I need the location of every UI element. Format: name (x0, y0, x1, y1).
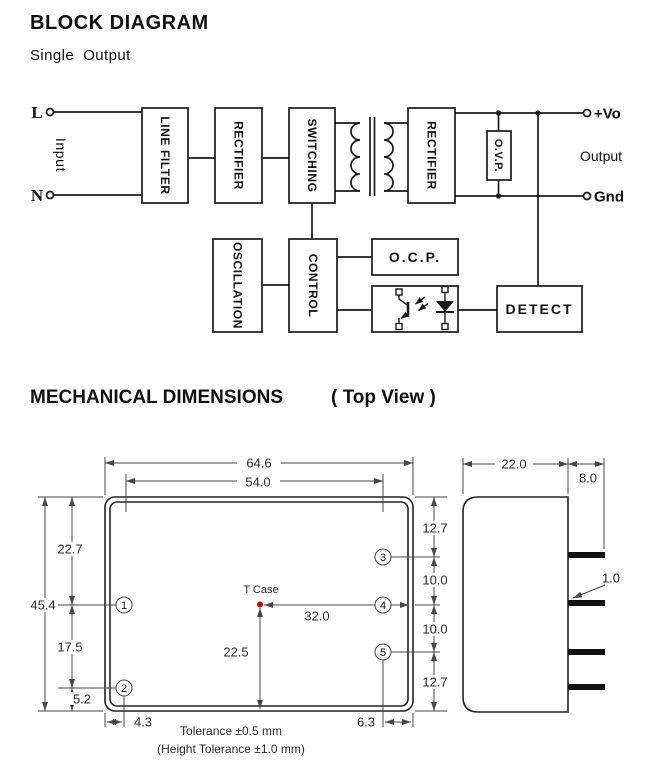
line-filter-label: LINE FILTER (158, 116, 172, 194)
side-pin-1 (568, 552, 605, 558)
dimension-pin-inset-right: 6.3 (357, 713, 413, 730)
svg-text:4.3: 4.3 (134, 715, 152, 730)
dimension-depth: 22.0 (463, 457, 568, 494)
pin5-number: 5 (380, 647, 386, 659)
side-pin-3 (568, 649, 605, 655)
svg-text:22.0: 22.0 (501, 457, 526, 472)
svg-text:17.5: 17.5 (57, 640, 82, 655)
terminal-n-label: N (31, 186, 44, 205)
svg-text:22.5: 22.5 (223, 645, 248, 660)
dimension-height-total: 45.4 (26, 497, 103, 711)
pin2-number: 2 (121, 683, 127, 695)
dimension-pin-thickness: 1.0 (573, 571, 620, 598)
svg-text:8.0: 8.0 (579, 471, 597, 486)
mechanical-drawing: 64.6 54.0 45.4 22.7 17.5 5.2 (0, 440, 659, 770)
output-label: Output (580, 148, 622, 164)
block-diagram-subtitle: Single Output (30, 47, 131, 64)
svg-text:6.3: 6.3 (357, 715, 375, 730)
svg-text:12.7: 12.7 (422, 675, 447, 690)
tcase-label: T Case (243, 584, 278, 596)
transformer-symbol (335, 117, 408, 196)
pin3-number: 3 (380, 552, 386, 564)
switching-label: SWITCHING (305, 118, 319, 192)
tolerance-note-1: Tolerance ±0.5 mm (180, 724, 282, 738)
terminal-l-node (47, 109, 54, 116)
block-diagram: L N Input LINE FILTER RECTIFIER SWITCHIN… (0, 95, 659, 345)
ocp-label: O.C.P. (389, 249, 441, 265)
top-view-label: ( Top View ) (331, 387, 436, 409)
svg-text:1.0: 1.0 (602, 571, 620, 586)
input-label: Input (53, 138, 69, 172)
terminal-vo-label: +Vo (594, 105, 621, 122)
svg-text:12.7: 12.7 (422, 521, 447, 536)
mechanical-title: MECHANICAL DIMENSIONS (30, 387, 283, 409)
block-diagram-title: BLOCK DIAGRAM (30, 12, 209, 35)
pin1-number: 1 (121, 600, 127, 612)
dimension-right-pins: 12.7 10.0 10.0 12.7 (415, 497, 451, 711)
terminal-n-node (47, 192, 54, 199)
dimension-pin-inset-left: 4.3 (105, 713, 152, 730)
side-pin-2 (568, 600, 605, 606)
datasheet-page: BLOCK DIAGRAM Single Output L N Input LI… (0, 0, 659, 770)
output-rails (455, 110, 583, 286)
detect-label: DETECT (506, 301, 574, 317)
svg-text:10.0: 10.0 (422, 573, 447, 588)
pin4-number: 4 (380, 600, 386, 612)
ovp-label: O.V.P. (492, 139, 504, 173)
svg-text:22.7: 22.7 (57, 542, 82, 557)
side-pin-4 (568, 684, 605, 690)
svg-text:64.6: 64.6 (246, 456, 271, 471)
terminal-gnd-label: Gnd (594, 188, 624, 205)
terminal-gnd-node (584, 193, 591, 200)
dimension-pin-length: 8.0 (568, 458, 604, 549)
terminal-l-label: L (31, 103, 42, 122)
rectifier-in-label: RECTIFIER (231, 121, 245, 190)
svg-text:54.0: 54.0 (245, 475, 270, 490)
oscillation-label: OSCILLATION (230, 242, 244, 329)
control-label: CONTROL (306, 254, 320, 318)
svg-text:32.0: 32.0 (304, 609, 329, 624)
side-view-body (463, 497, 568, 712)
terminal-vo-node (584, 110, 591, 117)
tolerance-note-2: (Height Tolerance ±1.0 mm) (157, 742, 305, 756)
rectifier-out-label: RECTIFIER (424, 121, 438, 190)
svg-text:10.0: 10.0 (422, 622, 447, 637)
svg-text:5.2: 5.2 (73, 692, 91, 707)
svg-text:45.4: 45.4 (30, 598, 55, 613)
tcase-point (257, 602, 263, 608)
